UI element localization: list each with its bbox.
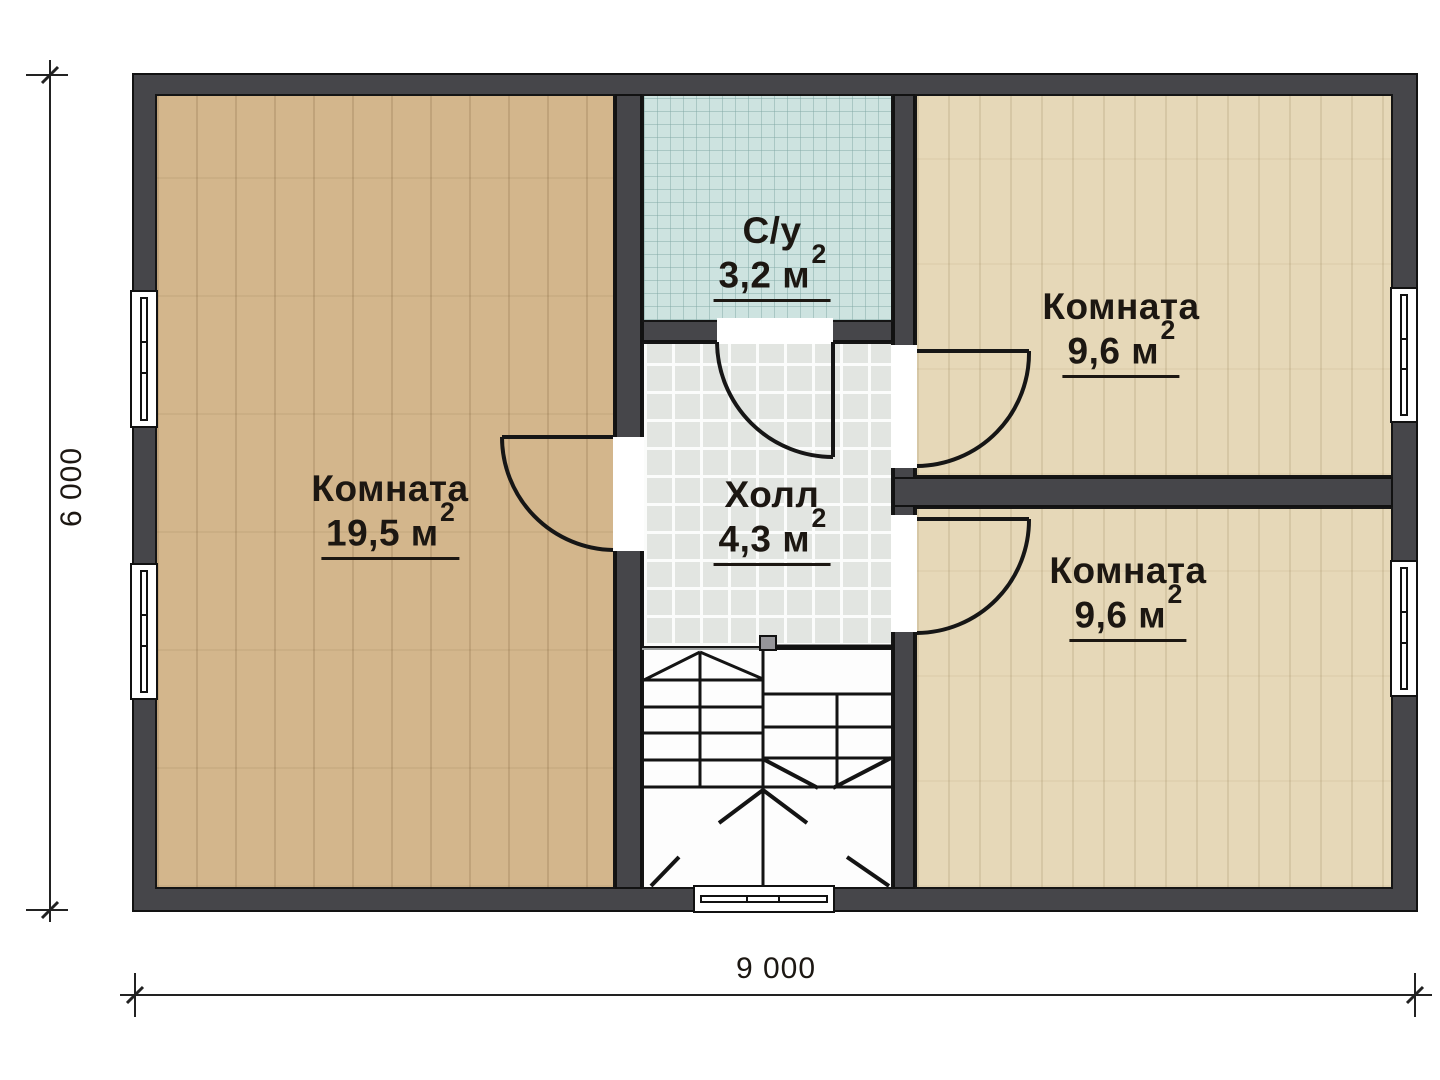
room-area: 4,3 м2 xyxy=(714,515,831,566)
room-name: Комната xyxy=(1042,286,1199,327)
dimension-height-label: 6 000 xyxy=(55,447,89,527)
room-top-right-label: Комната 9,6 м2 xyxy=(1042,286,1199,378)
room-area: 19,5 м2 xyxy=(311,509,468,560)
hall-label: Холл 4,3 м2 xyxy=(714,474,831,566)
room-area: 9,6 м2 xyxy=(1049,591,1206,642)
door-bathroom xyxy=(717,342,833,457)
dimension-width-label: 9 000 xyxy=(736,952,816,986)
room-left-label: Комната 19,5 м2 xyxy=(311,468,468,560)
door-bottom-right-room xyxy=(917,519,1029,633)
room-bottom-right-label: Комната 9,6 м2 xyxy=(1049,550,1206,642)
stair-newel-post xyxy=(759,635,777,651)
door-top-right-room xyxy=(917,351,1029,466)
room-area: 9,6 м2 xyxy=(1042,327,1199,378)
bathroom-label: С/у 3,2 м2 xyxy=(714,210,831,302)
room-area: 3,2 м2 xyxy=(714,251,831,302)
staircase-lines xyxy=(642,647,893,887)
door-left-room xyxy=(502,437,613,550)
room-name: Комната xyxy=(1049,550,1206,591)
floor-plan-canvas: Комната 19,5 м2 С/у 3,2 м2 Холл 4,3 м2 К… xyxy=(0,0,1440,1080)
